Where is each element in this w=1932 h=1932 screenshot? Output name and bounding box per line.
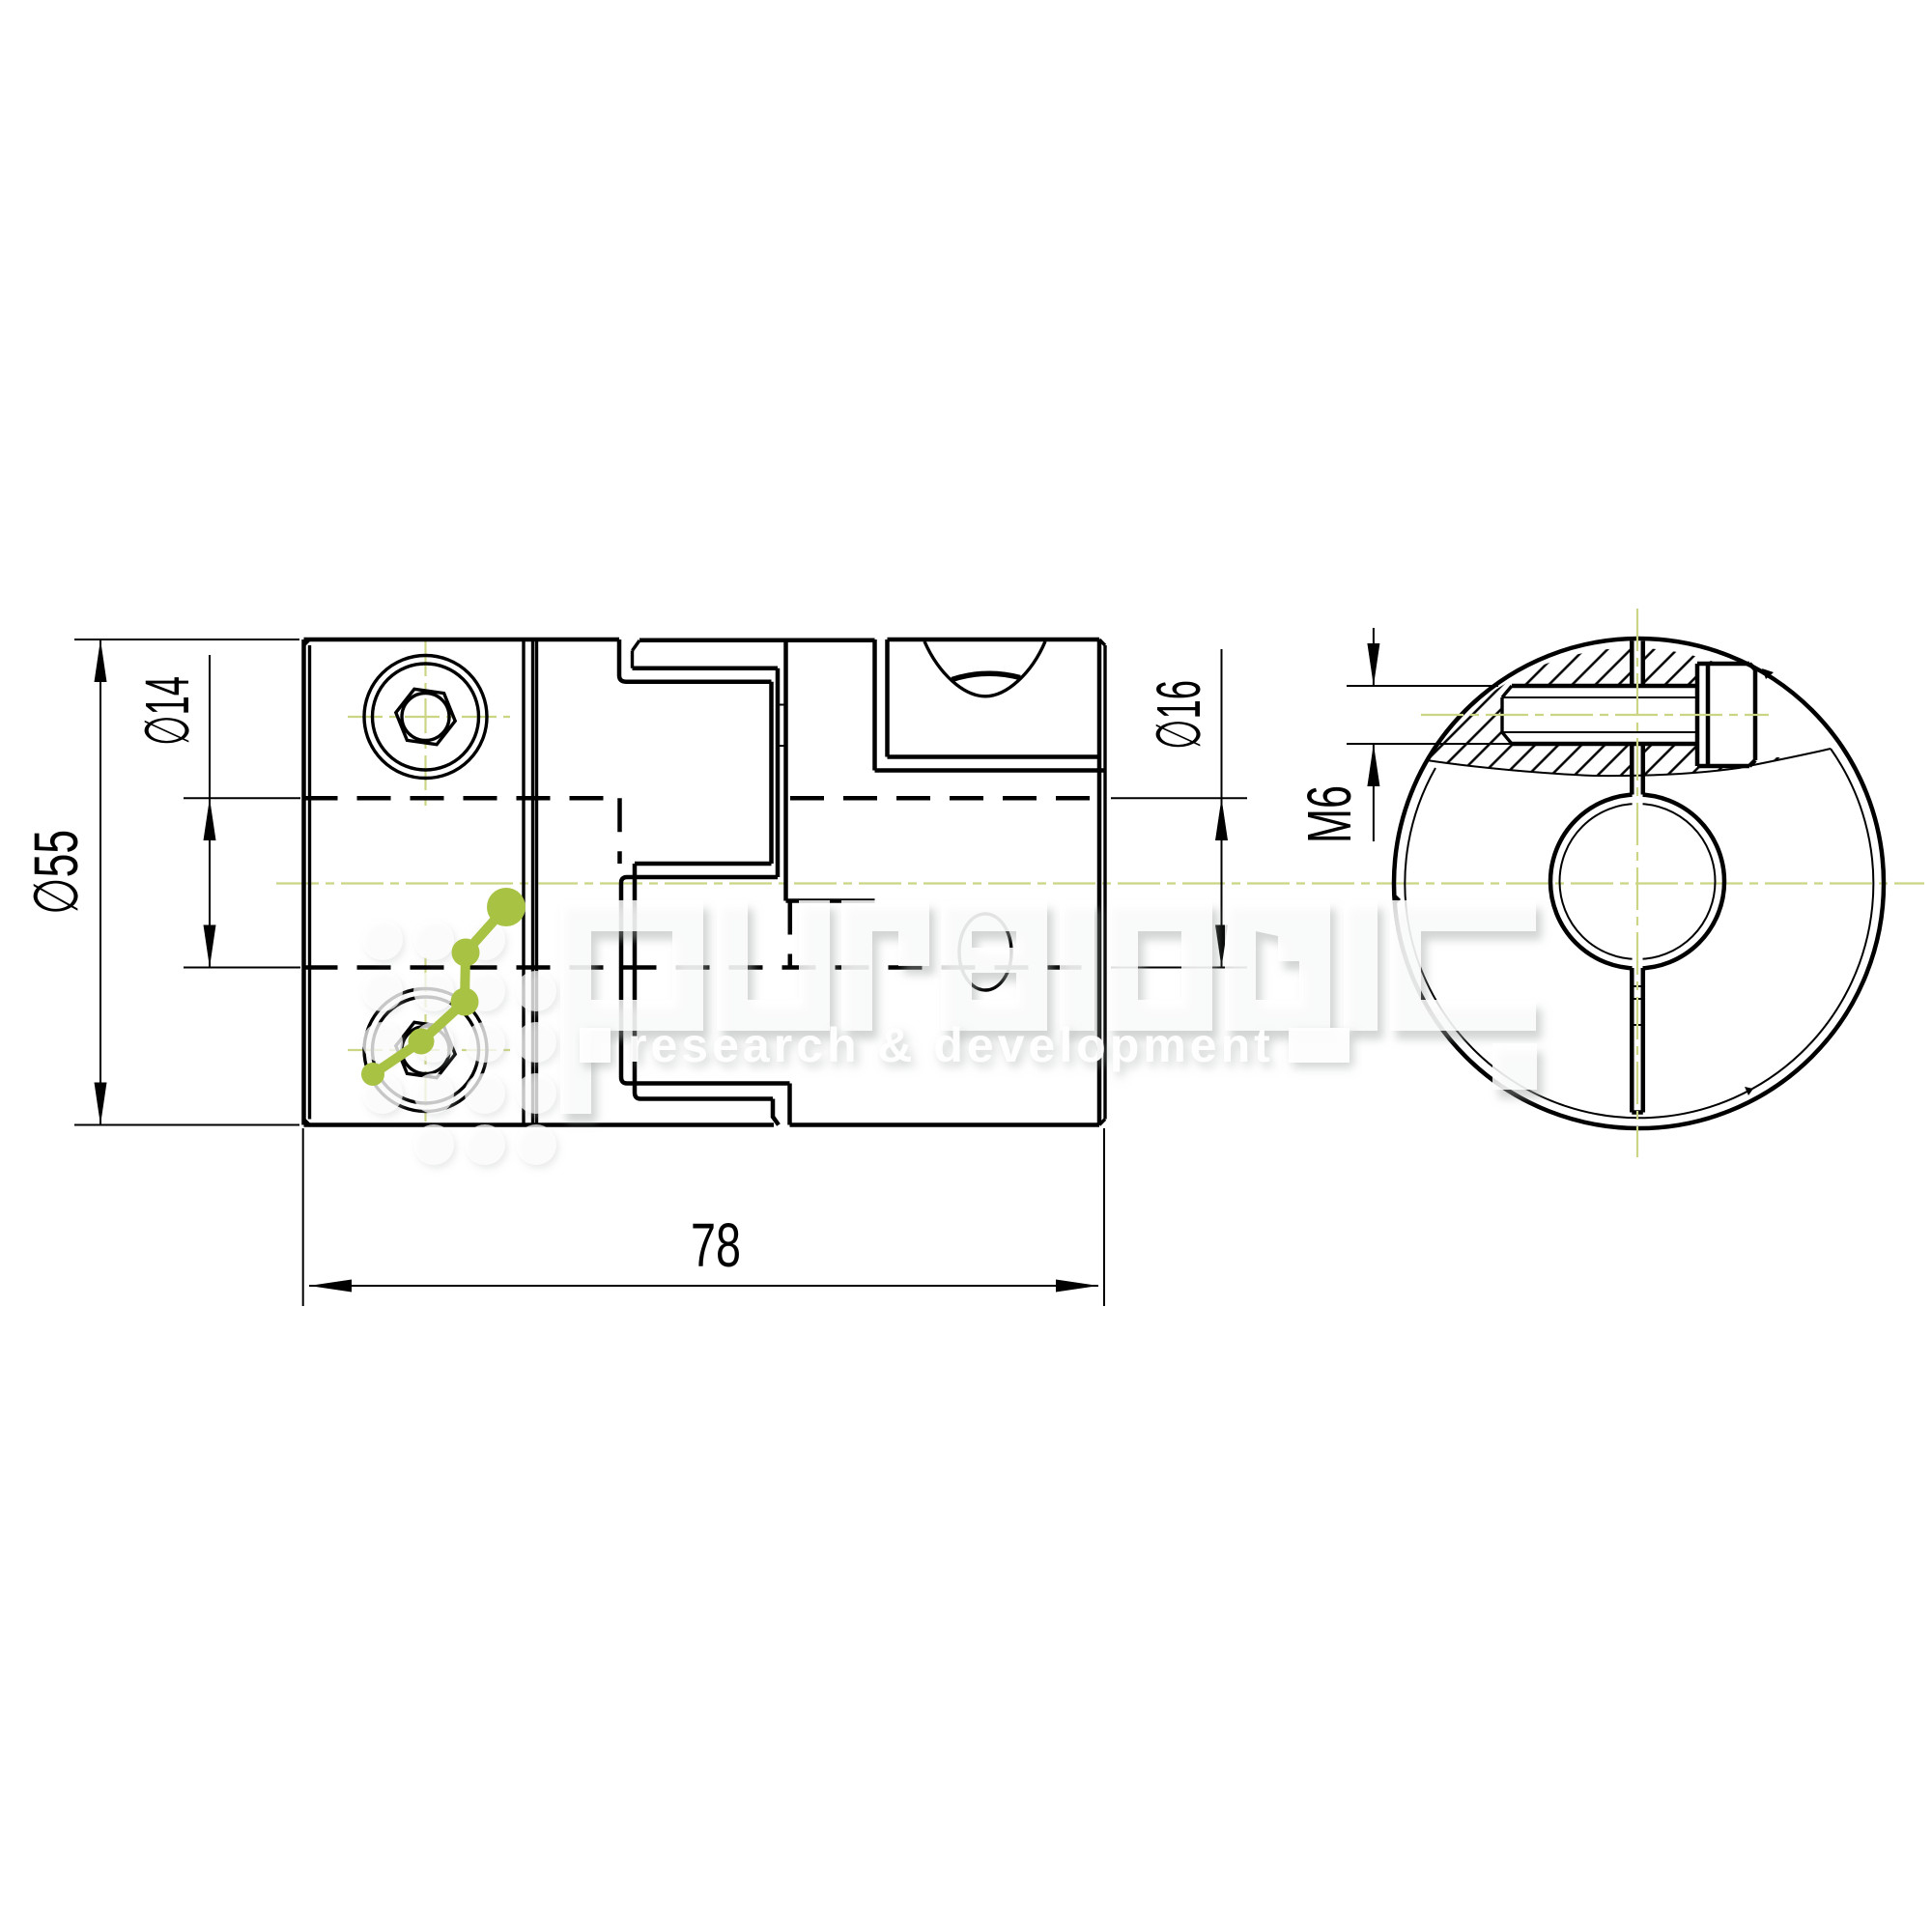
svg-text:∅14: ∅14 [132, 676, 202, 746]
svg-text:research & development: research & development [628, 1018, 1274, 1072]
svg-text:78: 78 [691, 1210, 741, 1280]
svg-text:∅55: ∅55 [21, 830, 91, 915]
svg-text:M6: M6 [1294, 785, 1364, 843]
svg-text:∅16: ∅16 [1144, 680, 1213, 750]
